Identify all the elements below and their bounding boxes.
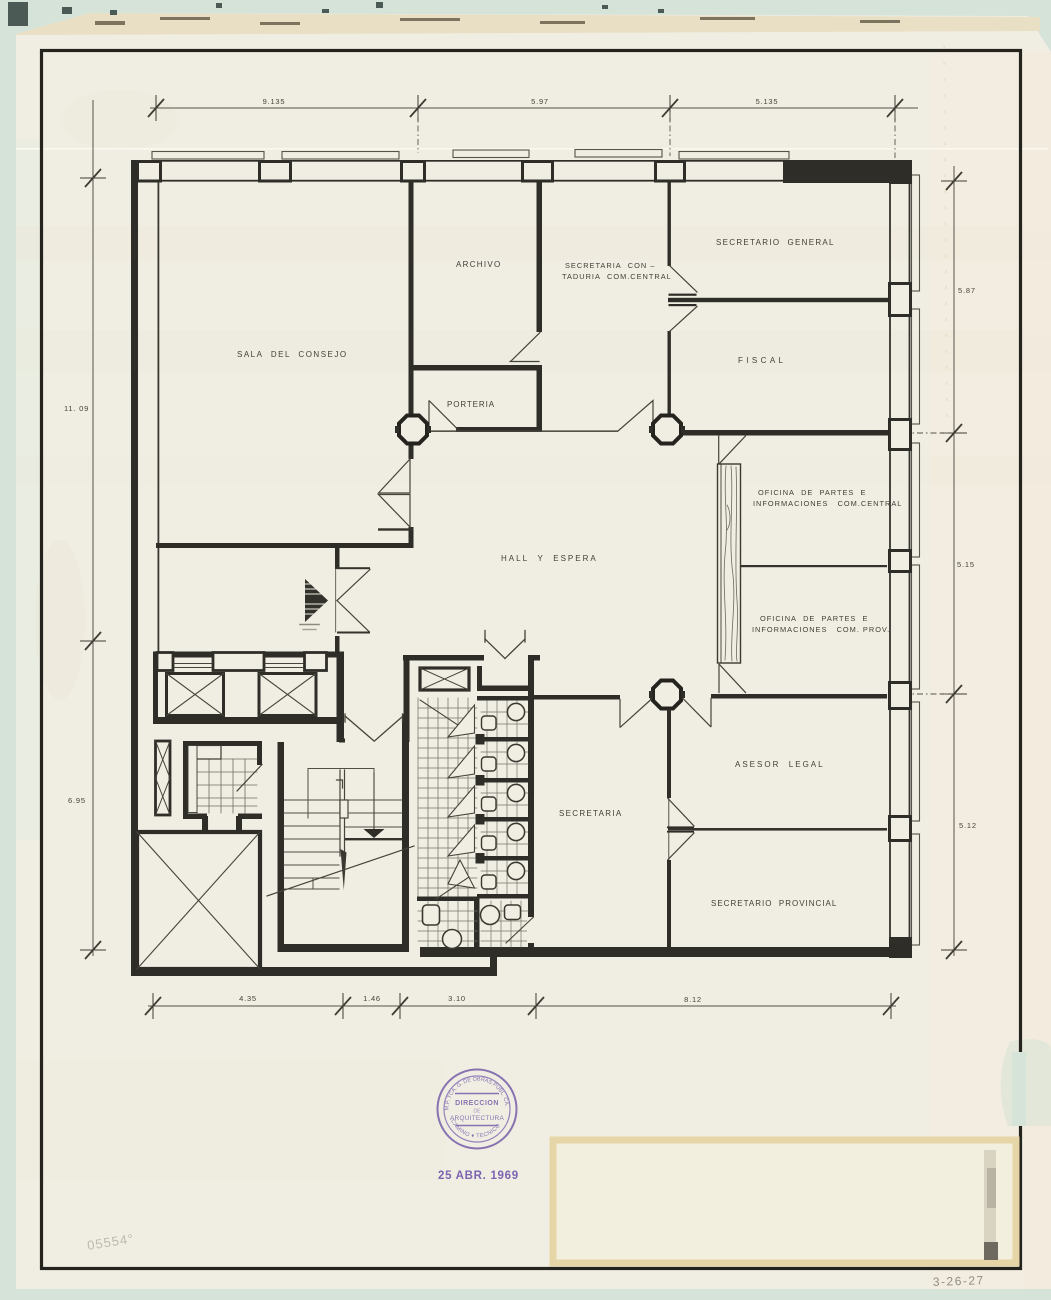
- svg-text:4.35: 4.35: [239, 994, 257, 1003]
- svg-text:11. 09: 11. 09: [64, 404, 89, 413]
- svg-text:INFORMACIONES COM.CENTRAL: INFORMACIONES COM.CENTRAL: [753, 499, 902, 508]
- svg-text:25 ABR. 1969: 25 ABR. 1969: [438, 1170, 519, 1182]
- svg-text:5.87: 5.87: [958, 286, 976, 295]
- svg-text:5.15: 5.15: [957, 560, 975, 569]
- svg-text:TADURIA COM.CENTRAL: TADURIA COM.CENTRAL: [562, 272, 672, 281]
- svg-text:DE: DE: [473, 1109, 481, 1115]
- svg-text:5.135: 5.135: [756, 97, 779, 106]
- svg-text:OFICINA DE PARTES E: OFICINA DE PARTES E: [760, 614, 868, 623]
- svg-text:6.95: 6.95: [68, 796, 86, 805]
- svg-text:FISCAL: FISCAL: [738, 356, 786, 365]
- svg-text:PORTERIA: PORTERIA: [447, 400, 495, 409]
- svg-text:OFICINA DE PARTES E: OFICINA DE PARTES E: [758, 488, 866, 497]
- svg-text:9.135: 9.135: [263, 97, 286, 106]
- svg-text:ARCHIVO: ARCHIVO: [456, 260, 502, 269]
- svg-text:3-26-27: 3-26-27: [933, 1273, 985, 1289]
- svg-text:8.12: 8.12: [684, 995, 702, 1004]
- svg-text:5.12: 5.12: [959, 821, 977, 830]
- svg-text:INFORMACIONES COM. PROV.: INFORMACIONES COM. PROV.: [752, 625, 890, 634]
- svg-text:SALA DEL CONSEJO: SALA DEL CONSEJO: [237, 350, 348, 359]
- svg-text:SECRETARIO PROVINCIAL: SECRETARIO PROVINCIAL: [711, 899, 837, 908]
- svg-text:ARQUITECTURA: ARQUITECTURA: [450, 1115, 504, 1122]
- svg-text:SECRETARIA CON –: SECRETARIA CON –: [565, 261, 655, 270]
- svg-text:3.10: 3.10: [448, 994, 466, 1003]
- svg-text:5.97: 5.97: [531, 97, 549, 106]
- svg-text:SECRETARIA: SECRETARIA: [559, 809, 623, 818]
- svg-text:ASESOR LEGAL: ASESOR LEGAL: [735, 760, 825, 769]
- svg-text:SECRETARIO GENERAL: SECRETARIO GENERAL: [716, 238, 835, 247]
- svg-text:1.46: 1.46: [363, 994, 381, 1003]
- svg-text:HALL Y ESPERA: HALL Y ESPERA: [501, 554, 598, 563]
- svg-text:DIRECCION: DIRECCION: [455, 1100, 499, 1107]
